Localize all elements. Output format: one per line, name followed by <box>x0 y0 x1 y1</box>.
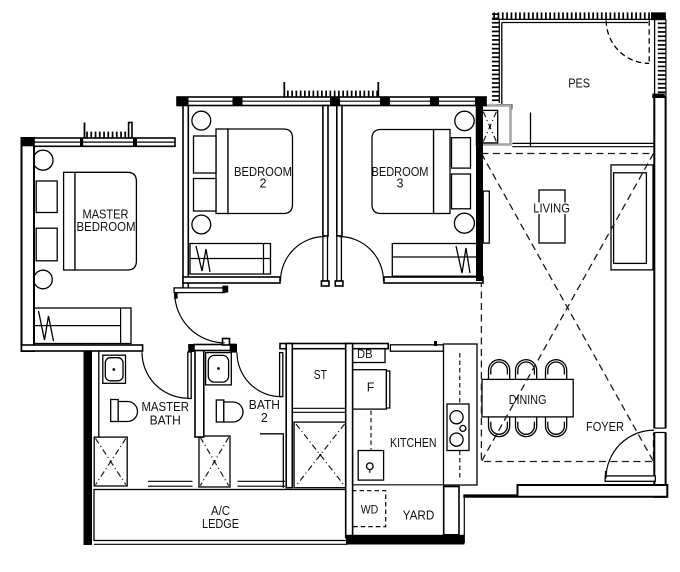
svg-text:MASTER: MASTER <box>141 400 189 414</box>
svg-text:F: F <box>367 381 375 395</box>
svg-text:ST: ST <box>314 368 327 382</box>
svg-text:DB: DB <box>357 347 373 361</box>
svg-text:2: 2 <box>261 411 268 425</box>
svg-text:3: 3 <box>397 177 404 191</box>
svg-text:BATH: BATH <box>150 414 181 428</box>
svg-text:DINING: DINING <box>509 393 547 407</box>
svg-text:YARD: YARD <box>403 509 435 523</box>
svg-text:2: 2 <box>260 176 267 190</box>
svg-text:FOYER: FOYER <box>586 420 624 434</box>
svg-text:BATH: BATH <box>249 398 280 412</box>
svg-text:BEDROOM: BEDROOM <box>77 220 136 234</box>
svg-text:A/C: A/C <box>211 504 230 518</box>
svg-text:PES: PES <box>568 76 590 90</box>
svg-text:LIVING: LIVING <box>533 202 570 216</box>
svg-text:WD: WD <box>361 503 379 517</box>
svg-text:KITCHEN: KITCHEN <box>390 436 437 450</box>
svg-text:LEDGE: LEDGE <box>202 517 239 531</box>
